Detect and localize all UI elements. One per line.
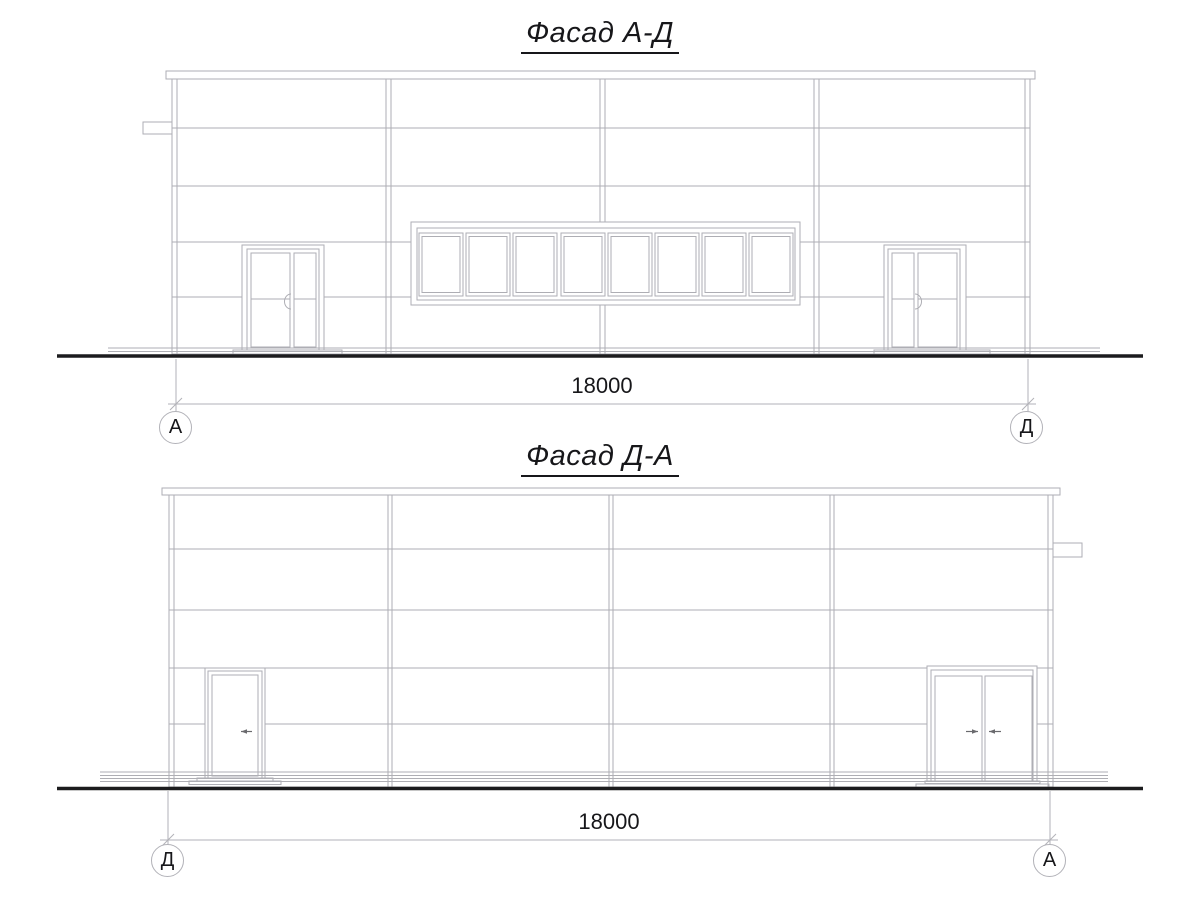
drawing-title-facade-d-a: Фасад Д-А	[521, 440, 679, 477]
window-band	[411, 222, 800, 305]
drawing-sheet: Фасад А-Д 18000 А Д Фасад Д-А 18000 Д А	[0, 0, 1200, 900]
title-row: Фасад А-Д	[0, 17, 1200, 54]
facade-outline	[169, 495, 1053, 787]
drawing-title-facade-a-d: Фасад А-Д	[521, 17, 679, 54]
axis-marker-a: А	[1033, 844, 1066, 877]
parapet-cap	[162, 488, 1060, 495]
parapet-cap	[166, 71, 1035, 79]
double-door-right	[916, 666, 1049, 787]
scupper-box	[143, 122, 172, 134]
dimension-value: 18000	[532, 373, 672, 399]
axis-marker-d: Д	[151, 844, 184, 877]
dimension-value: 18000	[539, 809, 679, 835]
scupper-box	[1053, 543, 1082, 557]
title-row: Фасад Д-А	[0, 440, 1200, 477]
